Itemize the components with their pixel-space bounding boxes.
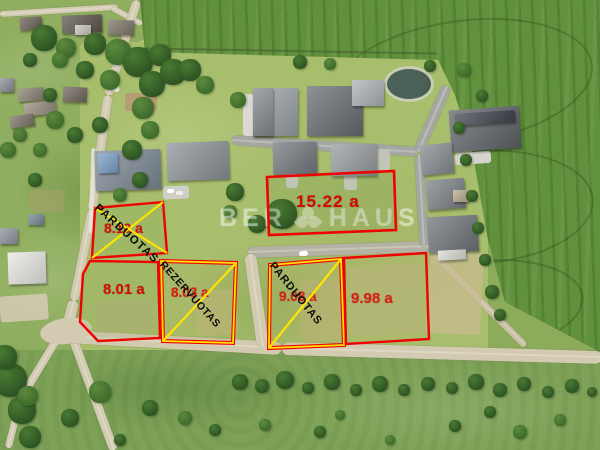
aerial-photo: BER HAUS 8.10 a 8.01 a 8.03 a 9.08 a 9.9…: [0, 0, 600, 450]
plot-available-1-outline: [80, 261, 160, 341]
plot-available-3-outline: [267, 171, 396, 235]
plot-available-2-outline: [344, 253, 429, 344]
plot-outlines-overlay: [0, 0, 600, 450]
